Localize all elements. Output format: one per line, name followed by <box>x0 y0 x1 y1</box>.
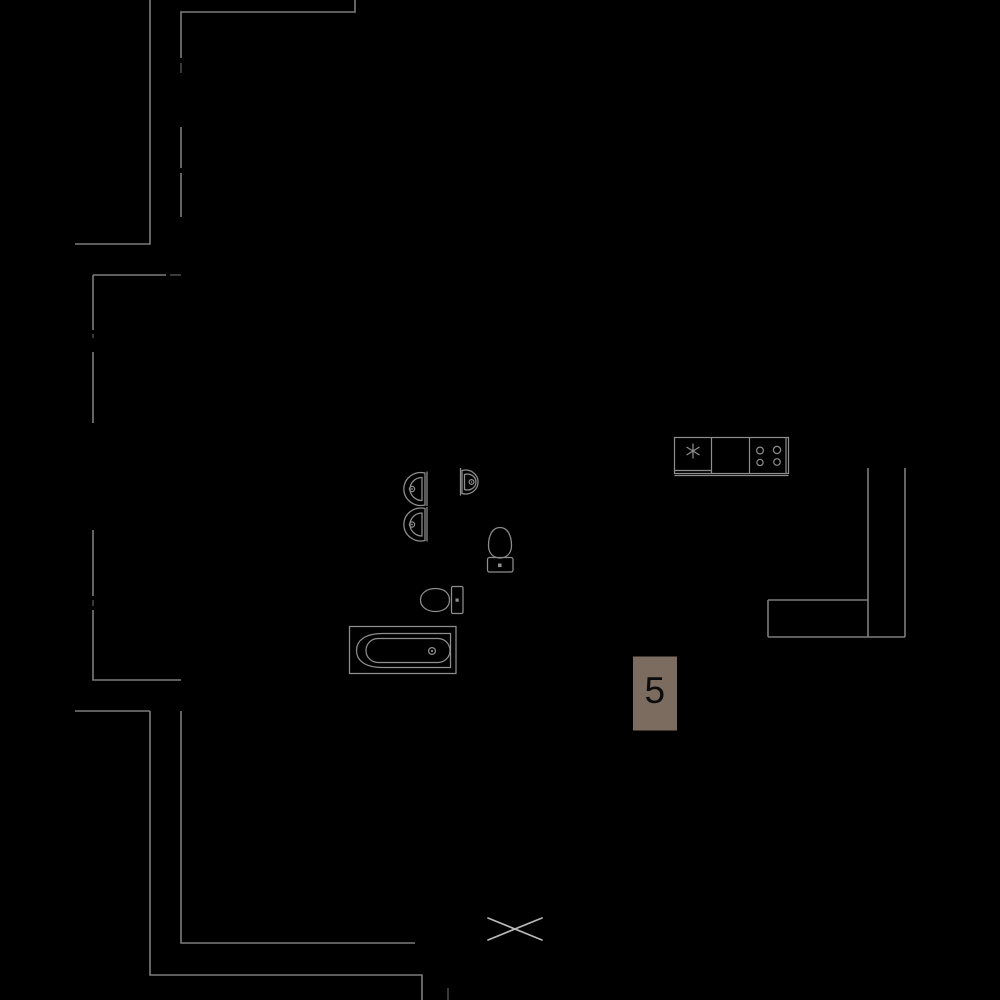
wall-segment-bottom-left <box>75 711 422 1000</box>
wall-segment-right <box>768 468 905 637</box>
walls <box>75 0 905 1000</box>
burner <box>774 459 781 466</box>
burner <box>773 446 780 453</box>
bathtub-basin <box>366 639 450 663</box>
x-cross-lines <box>488 918 542 940</box>
toilet-button <box>498 564 502 568</box>
unit-number-label: 5 <box>644 670 665 711</box>
asterisk-lines <box>687 444 700 459</box>
floorplan-svg: 5 <box>0 0 1000 1000</box>
fridge-asterisk-icon <box>687 444 700 459</box>
bathtub <box>350 627 457 674</box>
wall-dashed-segment <box>93 63 448 1000</box>
unit-badge[interactable]: 5 <box>633 657 677 731</box>
kitchen-counter-dividers <box>675 438 789 476</box>
bathroom-fixtures <box>350 468 514 674</box>
wall-openings <box>93 63 448 1000</box>
faucet-dot-center <box>471 481 473 483</box>
kitchen-counter-outline <box>675 438 789 474</box>
burner <box>757 447 764 454</box>
faucet-dot-center <box>411 488 413 490</box>
faucet-dot-center <box>411 524 413 526</box>
floorplan-canvas: 5 <box>0 0 1000 1000</box>
drain-dot-center <box>431 650 433 652</box>
stove-burners-icon <box>757 446 781 465</box>
toilet-bowl <box>489 528 512 559</box>
wash-basin-lower <box>404 507 427 542</box>
wash-basin-upper <box>404 472 427 507</box>
toilet-facing-up <box>488 528 514 573</box>
wall-segment-top-left <box>75 0 355 244</box>
toilet-facing-left <box>421 587 464 614</box>
toilet-button <box>456 599 459 602</box>
toilet-bowl <box>421 589 450 612</box>
kitchen-counter <box>675 438 789 476</box>
wall-segment-left <box>93 275 181 680</box>
shaft-cross-icon <box>488 918 542 940</box>
burner <box>757 459 763 465</box>
wash-basin-small <box>461 468 479 496</box>
